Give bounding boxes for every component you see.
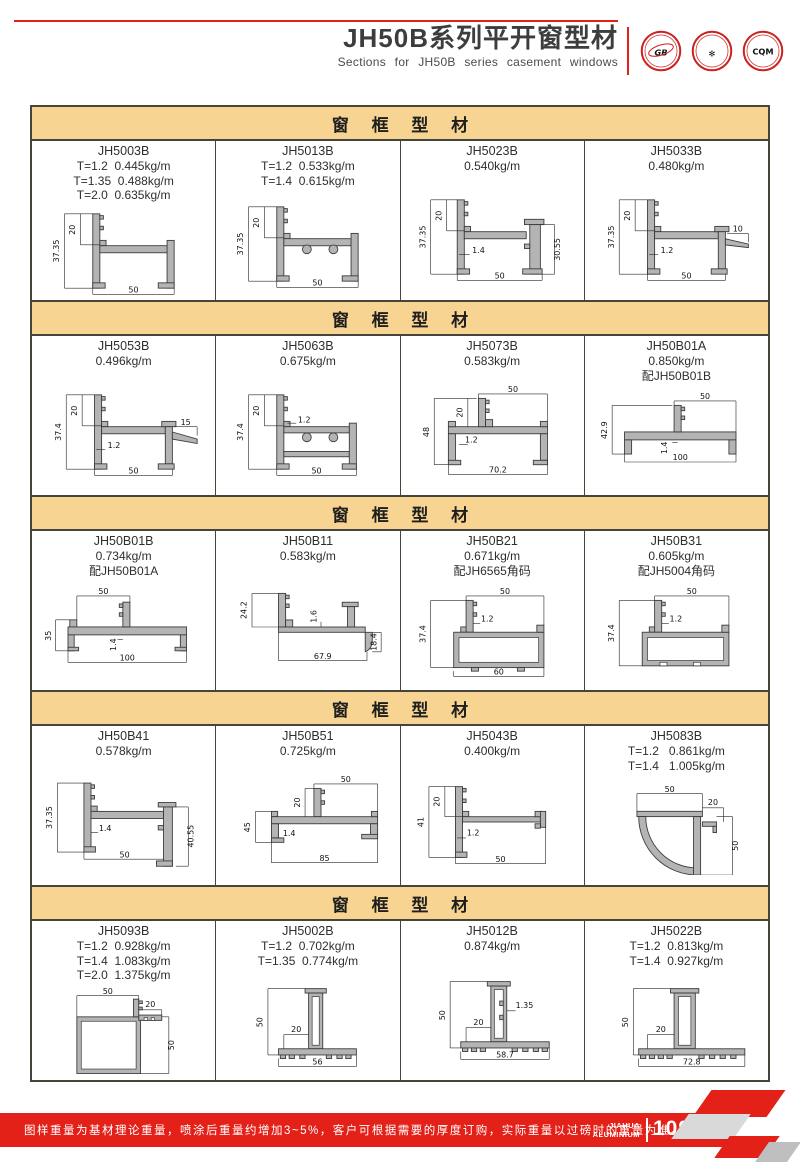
dim-label: 1.2 <box>467 828 480 837</box>
profile-specs: 0.605kg/m 配JH5004角码 <box>638 549 715 578</box>
profile-cell: JH50B11 0.583kg/m 24.2 1.6 18.4 67.9 <box>216 531 400 690</box>
dim-label: 40.55 <box>186 825 195 848</box>
profile-cell: JH5073B 0.583kg/m 50 48 20 1.2 70.2 <box>401 336 585 495</box>
dim-label: 50 <box>495 271 505 280</box>
dim-label: 70.2 <box>489 465 507 474</box>
dim-label: 30.55 <box>553 238 562 261</box>
dim-label: 37.35 <box>52 240 61 263</box>
certification-logos: GB ✻ CQM <box>639 29 785 73</box>
dim-label: 50 <box>341 776 351 784</box>
profile-code: JH50B21 <box>466 534 517 549</box>
profile-drawing: 50 48 20 1.2 70.2 <box>413 386 570 478</box>
logo-divider <box>627 27 629 75</box>
profile-code: JH50B31 <box>651 534 702 549</box>
profile-drawing: 50 42.9 1.4 100 <box>598 393 755 485</box>
dim-label: 18.4 <box>370 633 379 651</box>
profile-specs: 0.583kg/m <box>464 354 520 369</box>
dim-label: 20 <box>68 225 77 235</box>
dim-label: 50 <box>312 466 322 475</box>
dim-label: 50 <box>681 271 691 280</box>
dim-label: 37.35 <box>45 806 54 829</box>
profile-specs: 0.671kg/m 配JH6565角码 <box>453 549 530 578</box>
dim-label: 37.4 <box>236 423 245 441</box>
profile-code: JH50B51 <box>282 729 333 744</box>
dim-label: 1.2 <box>298 415 311 424</box>
profile-cell: JH5013B T=1.2 0.533kg/m T=1.4 0.615kg/m … <box>216 141 400 300</box>
quality-star-logo-icon: ✻ <box>690 29 734 73</box>
profile-cell: JH5043B 0.400kg/m 41 20 1.2 50 <box>401 726 585 885</box>
profile-drawing: 50 35 1.4 100 <box>45 588 202 680</box>
dim-label: 50 <box>496 855 506 864</box>
dim-label: 20 <box>252 405 261 415</box>
dim-label: 37.4 <box>54 423 63 441</box>
dim-label: 41 <box>417 817 426 827</box>
profile-section-4: 窗 框 型 材 JH50B41 0.578kg/m 37.35 1.4 40.5… <box>30 692 770 887</box>
profile-drawing: 37.4 20 1.2 50 <box>229 386 386 478</box>
profile-code: JH50B11 <box>283 534 334 549</box>
profile-cell: JH50B31 0.605kg/m 配JH5004角码 50 37.4 1.2 <box>585 531 768 690</box>
profile-code: JH5012B <box>466 924 517 939</box>
dim-label: 20 <box>622 210 631 220</box>
profile-code: JH5023B <box>466 144 517 159</box>
profile-drawing: 37.35 20 1.4 30.55 50 <box>413 191 570 283</box>
profile-drawing: 50 20 72.8 <box>598 978 755 1070</box>
profile-specs: 0.734kg/m 配JH50B01A <box>89 549 158 578</box>
dim-label: 1.2 <box>481 615 494 624</box>
dim-label: 50 <box>167 1040 176 1050</box>
section-title: 窗 框 型 材 <box>32 107 768 141</box>
profile-specs: 0.675kg/m <box>280 354 336 369</box>
profile-cell: JH5003B T=1.2 0.445kg/m T=1.35 0.488kg/m… <box>32 141 216 300</box>
dim-label: 20 <box>291 1025 301 1034</box>
page-subtitle: Sections for JH50B series casement windo… <box>160 55 618 69</box>
dim-label: 50 <box>686 588 696 596</box>
section-title: 窗 框 型 材 <box>32 887 768 921</box>
dim-label: 20 <box>474 1018 484 1027</box>
dim-label: 50 <box>730 841 739 851</box>
catalog-page: JH50B系列平开窗型材 Sections for JH50B series c… <box>0 0 800 1167</box>
profile-cell: JH5083B T=1.2 0.861kg/m T=1.4 1.005kg/m … <box>585 726 768 885</box>
profile-drawing: 50 37.4 1.2 <box>598 588 755 680</box>
profile-code: JH50B41 <box>98 729 149 744</box>
brand-line2: ALUMINIUM <box>593 1130 640 1139</box>
dim-label: 1.2 <box>108 441 121 450</box>
profile-section-2: 窗 框 型 材 JH5053B 0.496kg/m 37.4 20 15 1.2… <box>30 302 770 497</box>
profile-drawing: 50 20 50 <box>45 985 202 1077</box>
dim-label: 10 <box>732 224 742 233</box>
profile-section-3: 窗 框 型 材 JH50B01B 0.734kg/m 配JH50B01A 50 … <box>30 497 770 692</box>
profile-cell: JH5053B 0.496kg/m 37.4 20 15 1.2 50 <box>32 336 216 495</box>
dim-label: 50 <box>508 386 518 394</box>
dim-label: 37.35 <box>607 225 616 248</box>
dim-label: 50 <box>98 588 108 596</box>
dim-label: 1.2 <box>660 246 673 255</box>
profile-drawing: 41 20 1.2 50 <box>413 776 570 868</box>
dim-label: 100 <box>672 453 687 462</box>
profile-specs: 0.583kg/m <box>280 549 336 564</box>
dim-label: 1.2 <box>465 435 478 444</box>
profile-catalog: 窗 框 型 材 JH5003B T=1.2 0.445kg/m T=1.35 0… <box>30 105 770 1082</box>
profile-code: JH5073B <box>466 339 517 354</box>
footer-deco-parallelogram <box>693 1090 786 1117</box>
section-title: 窗 框 型 材 <box>32 497 768 531</box>
profile-specs: 0.725kg/m <box>280 744 336 759</box>
dim-label: 1.2 <box>669 615 682 624</box>
profile-code: JH50B01B <box>94 534 154 549</box>
dim-label: 1.4 <box>473 246 486 255</box>
profile-specs: T=1.2 0.813kg/m T=1.4 0.927kg/m <box>630 939 724 968</box>
profile-cell: JH50B01B 0.734kg/m 配JH50B01A 50 35 1.4 1… <box>32 531 216 690</box>
profile-specs: T=1.2 0.861kg/m T=1.4 1.005kg/m <box>628 744 725 773</box>
profile-specs: T=1.2 0.445kg/m T=1.35 0.488kg/m T=2.0 0… <box>73 159 173 203</box>
profile-cell: JH5012B 0.874kg/m 50 20 1.35 58.7 <box>401 921 585 1080</box>
dim-label: 1.35 <box>516 1001 534 1010</box>
dim-label: 1.6 <box>310 610 319 623</box>
dim-label: 50 <box>119 850 129 859</box>
profile-code: JH5033B <box>651 144 702 159</box>
profile-specs: 0.874kg/m <box>464 939 520 954</box>
dim-label: 50 <box>103 987 113 996</box>
dim-label: 35 <box>45 631 53 641</box>
dim-label: 20 <box>433 796 442 806</box>
dim-label: 50 <box>621 1017 630 1027</box>
dim-label: 45 <box>243 822 252 832</box>
profile-drawing: 37.4 20 15 1.2 50 <box>45 386 202 478</box>
profile-specs: 0.540kg/m <box>464 159 520 174</box>
dim-label: 1.4 <box>109 638 118 651</box>
dim-label: 20 <box>655 1025 665 1034</box>
profile-code: JH5043B <box>466 729 517 744</box>
profile-specs: 0.480kg/m <box>648 159 704 174</box>
profile-code: JH5002B <box>282 924 333 939</box>
dim-label: 37.35 <box>419 225 428 248</box>
profile-drawing: 37.35 20 50 <box>229 198 386 290</box>
section-title: 窗 框 型 材 <box>32 692 768 726</box>
dim-label: 42.9 <box>599 421 608 439</box>
profile-drawing: 24.2 1.6 18.4 67.9 <box>229 581 386 673</box>
dim-label: 85 <box>320 854 330 863</box>
dim-label: 50 <box>500 588 510 596</box>
gb-cert-logo-icon: GB <box>639 29 683 73</box>
profile-specs: T=1.2 0.702kg/m T=1.35 0.774kg/m <box>258 939 358 968</box>
profile-cell: JH5033B 0.480kg/m 37.35 20 10 1.2 50 <box>585 141 768 300</box>
profile-drawing: 50 20 50 <box>598 783 755 875</box>
profile-drawing: 50 20 45 1.4 85 <box>229 776 386 868</box>
dim-label: 50 <box>256 1017 265 1027</box>
brand-name: JIAHUAALUMINIUM <box>552 1121 640 1139</box>
profile-code: JH5063B <box>282 339 333 354</box>
profile-cell: JH50B51 0.725kg/m 50 20 45 1.4 85 <box>216 726 400 885</box>
profile-drawing: 50 37.4 1.2 60 <box>413 588 570 680</box>
profile-code: JH5083B <box>651 729 702 744</box>
profile-drawing: 37.35 20 10 1.2 50 <box>598 191 755 283</box>
profile-cell: JH50B41 0.578kg/m 37.35 1.4 40.55 50 <box>32 726 216 885</box>
profile-cell: JH5023B 0.540kg/m 37.35 20 1.4 30.55 50 <box>401 141 585 300</box>
dim-label: 24.2 <box>240 601 249 619</box>
profile-code: JH50B01A <box>646 339 706 354</box>
profile-code: JH5053B <box>98 339 149 354</box>
profile-specs: 0.578kg/m <box>96 744 152 759</box>
dim-label: 20 <box>70 405 79 415</box>
dim-label: 20 <box>293 797 302 807</box>
profile-cell: JH50B01A 0.850kg/m 配JH50B01B 50 42.9 1.4… <box>585 336 768 495</box>
page-title: JH50B系列平开窗型材 <box>160 24 618 52</box>
profile-specs: 0.496kg/m <box>96 354 152 369</box>
dim-label: 50 <box>700 393 710 401</box>
profile-specs: T=1.2 0.928kg/m T=1.4 1.083kg/m T=2.0 1.… <box>77 939 171 983</box>
profile-specs: 0.850kg/m 配JH50B01B <box>642 354 711 383</box>
profile-section-1: 窗 框 型 材 JH5003B T=1.2 0.445kg/m T=1.35 0… <box>30 105 770 302</box>
profile-cell: JH50B21 0.671kg/m 配JH6565角码 50 37.4 1.2 … <box>401 531 585 690</box>
dim-label: 67.9 <box>314 652 332 661</box>
quality-logo-glyph: ✻ <box>709 49 716 59</box>
dim-label: 20 <box>145 1000 155 1009</box>
dim-label: 1.4 <box>660 442 669 455</box>
dim-label: 50 <box>128 286 138 295</box>
section-title: 窗 框 型 材 <box>32 302 768 336</box>
dim-label: 50 <box>664 785 674 794</box>
brand-line1: JIAHUA <box>609 1121 640 1130</box>
profile-drawing: 37.35 20 50 <box>45 205 202 297</box>
dim-label: 58.7 <box>497 1050 515 1059</box>
dim-label: 37.35 <box>236 233 245 256</box>
profile-cell: JH5093B T=1.2 0.928kg/m T=1.4 1.083kg/m … <box>32 921 216 1080</box>
profile-cell: JH5063B 0.675kg/m 37.4 20 1.2 50 <box>216 336 400 495</box>
profile-code: JH5022B <box>651 924 702 939</box>
cqm-logo-text: CQM <box>752 47 773 57</box>
profile-cell: JH5002B T=1.2 0.702kg/m T=1.35 0.774kg/m… <box>216 921 400 1080</box>
dim-label: 100 <box>120 654 135 663</box>
dim-label: 50 <box>128 466 138 475</box>
profile-code: JH5003B <box>98 144 149 159</box>
dim-label: 60 <box>494 668 504 677</box>
dim-label: 48 <box>422 427 431 437</box>
profile-section-5: 窗 框 型 材 JH5093B T=1.2 0.928kg/m T=1.4 1.… <box>30 887 770 1082</box>
profile-drawing: 37.35 1.4 40.55 50 <box>45 776 202 868</box>
dim-label: 20 <box>252 218 261 228</box>
profile-drawing: 50 20 1.35 58.7 <box>413 971 570 1063</box>
dim-label: 37.4 <box>419 625 428 643</box>
dim-label: 72.8 <box>683 1058 701 1067</box>
dim-label: 20 <box>708 798 718 807</box>
cqm-logo-icon: CQM <box>741 29 785 73</box>
footer-divider <box>646 1118 648 1142</box>
profile-drawing: 50 20 56 <box>229 978 386 1070</box>
dim-label: 50 <box>438 1010 447 1020</box>
dim-label: 50 <box>313 279 323 288</box>
dim-label: 15 <box>180 418 190 427</box>
dim-label: 1.4 <box>99 824 112 833</box>
profile-specs: T=1.2 0.533kg/m T=1.4 0.615kg/m <box>261 159 355 188</box>
dim-label: 1.4 <box>283 829 296 838</box>
profile-code: JH5013B <box>282 144 333 159</box>
dim-label: 37.4 <box>607 624 616 642</box>
header-red-rule <box>14 20 618 22</box>
dim-label: 20 <box>456 407 465 417</box>
profile-code: JH5093B <box>98 924 149 939</box>
profile-specs: 0.400kg/m <box>464 744 520 759</box>
dim-label: 56 <box>313 1058 323 1067</box>
dim-label: 20 <box>435 210 444 220</box>
profile-cell: JH5022B T=1.2 0.813kg/m T=1.4 0.927kg/m … <box>585 921 768 1080</box>
